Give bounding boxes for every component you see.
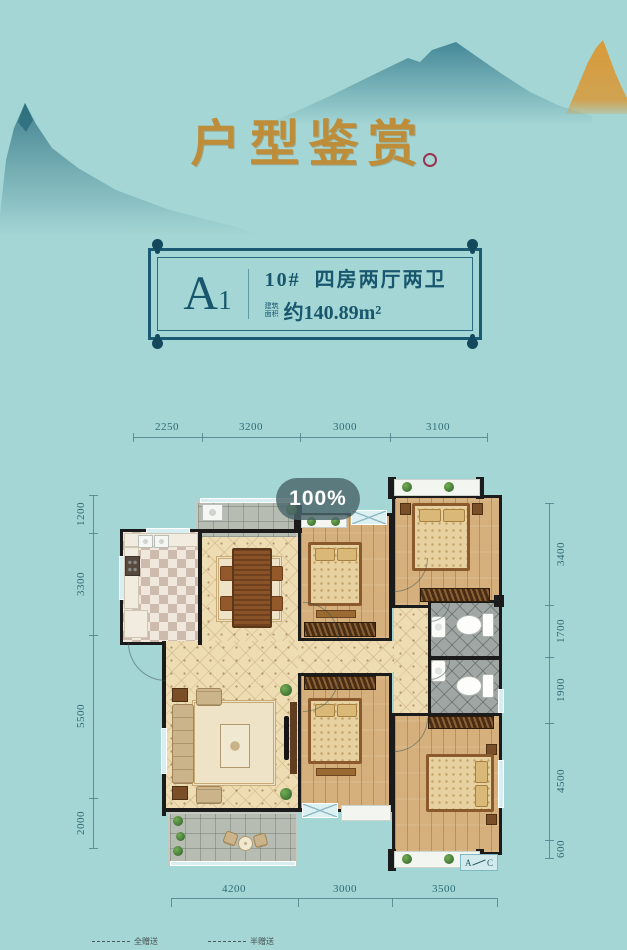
- bed: [308, 542, 362, 606]
- loading-progress-text: 100%: [289, 487, 347, 510]
- ruler-top: [133, 437, 487, 438]
- tv: [284, 716, 289, 760]
- bay-window: [341, 805, 391, 821]
- dim-right-3: 1900: [555, 678, 567, 702]
- wall: [198, 529, 302, 533]
- nightstand: [486, 814, 497, 825]
- wall: [198, 533, 202, 645]
- wardrobe: [420, 588, 490, 602]
- dim-bottom-1: 4200: [222, 883, 246, 895]
- dim-right-2: 1700: [555, 619, 567, 643]
- ruler-tick: [89, 848, 98, 849]
- legend-dash-icon: [208, 941, 246, 942]
- plant-icon: [173, 846, 183, 856]
- ruler-tick: [89, 798, 98, 799]
- bed-bench: [316, 768, 356, 776]
- ruler-tick: [545, 858, 554, 859]
- plant-icon: [280, 684, 292, 696]
- poster-page: 户型鉴赏 A 1 10# 四房两厅两卫 建筑 面积 约140.89m²: [0, 0, 627, 950]
- pillow: [419, 509, 441, 522]
- toilet-tank: [482, 613, 494, 637]
- plant-icon: [280, 788, 292, 800]
- legend-full-gift-label: 全赠送: [134, 936, 158, 947]
- armchair: [196, 786, 222, 804]
- side-table: [172, 688, 188, 702]
- section-marker-c: C: [487, 858, 493, 868]
- ruler-tick: [545, 657, 554, 658]
- ruler-tick: [545, 723, 554, 724]
- floor-plan: 2250 3200 3000 3100 4200 3000 3500 1200 …: [0, 0, 627, 950]
- window: [498, 760, 504, 808]
- dim-top-1: 2250: [155, 421, 179, 433]
- nightstand: [472, 503, 483, 515]
- pillow: [443, 509, 465, 522]
- hall-to-baths-floor: [394, 608, 428, 714]
- ruler-tick: [497, 898, 498, 907]
- kitchen-sink: [154, 535, 169, 548]
- dim-bottom-3: 3500: [432, 883, 456, 895]
- ruler-tick: [487, 433, 488, 442]
- toilet: [456, 615, 482, 635]
- section-marker: A C: [460, 854, 498, 871]
- ruler-tick: [545, 503, 554, 504]
- plant-icon: [444, 854, 454, 864]
- window: [498, 689, 504, 713]
- fixed-window: [351, 510, 387, 525]
- dim-left-2: 3300: [75, 572, 87, 596]
- plant-icon: [173, 816, 183, 826]
- armchair: [196, 688, 222, 706]
- legend-half-gift-label: 半赠送: [250, 936, 274, 947]
- ruler-left: [93, 495, 94, 848]
- image-loading-progress: 100%: [276, 478, 360, 520]
- legend-full-gift: 全赠送: [92, 936, 158, 947]
- ruler-tick: [545, 840, 554, 841]
- dining-table: [232, 548, 272, 628]
- wall-pier: [494, 595, 504, 607]
- coffee-table: [220, 724, 250, 768]
- tv-console: [290, 702, 297, 774]
- stove: [125, 556, 140, 576]
- pillow: [337, 704, 357, 717]
- pillow: [315, 548, 335, 561]
- fridge: [124, 610, 148, 638]
- ruler-tick: [392, 898, 393, 907]
- wardrobe: [428, 716, 494, 729]
- dim-right-1: 3400: [555, 542, 567, 566]
- patio-table: [238, 836, 253, 851]
- wall: [162, 808, 302, 812]
- legend-dash-icon: [92, 941, 130, 942]
- window: [170, 861, 296, 866]
- dim-right-4: 4500: [555, 769, 567, 793]
- sofa: [172, 704, 194, 784]
- section-marker-a: A: [465, 858, 472, 868]
- plant-icon: [444, 482, 454, 492]
- fixed-window: [302, 803, 338, 818]
- dim-right-5: 600: [555, 840, 567, 858]
- door-arc: [128, 643, 166, 681]
- dim-top-3: 3000: [333, 421, 357, 433]
- pillow: [337, 548, 357, 561]
- section-marker-line: [473, 859, 486, 865]
- ruler-tick: [171, 898, 172, 907]
- side-table: [172, 786, 188, 800]
- plant-icon: [402, 482, 412, 492]
- plant-icon: [176, 832, 185, 841]
- dim-top-2: 3200: [239, 421, 263, 433]
- nightstand: [400, 503, 411, 515]
- pillow: [475, 761, 488, 783]
- bed: [426, 754, 494, 812]
- legend-half-gift: 半赠送: [208, 936, 274, 947]
- ruler-tick: [89, 495, 98, 496]
- dim-top-4: 3100: [426, 421, 450, 433]
- ruler-tick: [133, 433, 134, 442]
- dim-left-4: 2000: [75, 811, 87, 835]
- ruler-tick: [298, 898, 299, 907]
- window: [161, 728, 167, 774]
- pillow: [475, 785, 488, 807]
- ruler-tick: [202, 433, 203, 442]
- ruler-tick: [390, 433, 391, 442]
- ruler-bottom: [171, 898, 497, 899]
- kitchen-sink: [138, 535, 153, 548]
- dim-bottom-2: 3000: [333, 883, 357, 895]
- ruler-tick: [545, 605, 554, 606]
- dim-left-3: 5500: [75, 704, 87, 728]
- washing-machine: [202, 504, 223, 521]
- ruler-tick: [89, 533, 98, 534]
- ruler-right: [549, 503, 550, 858]
- ruler-tick: [89, 635, 98, 636]
- ruler-tick: [300, 433, 301, 442]
- toilet: [456, 676, 482, 696]
- toilet-tank: [482, 674, 494, 698]
- plant-icon: [402, 854, 412, 864]
- dim-left-1: 1200: [75, 502, 87, 526]
